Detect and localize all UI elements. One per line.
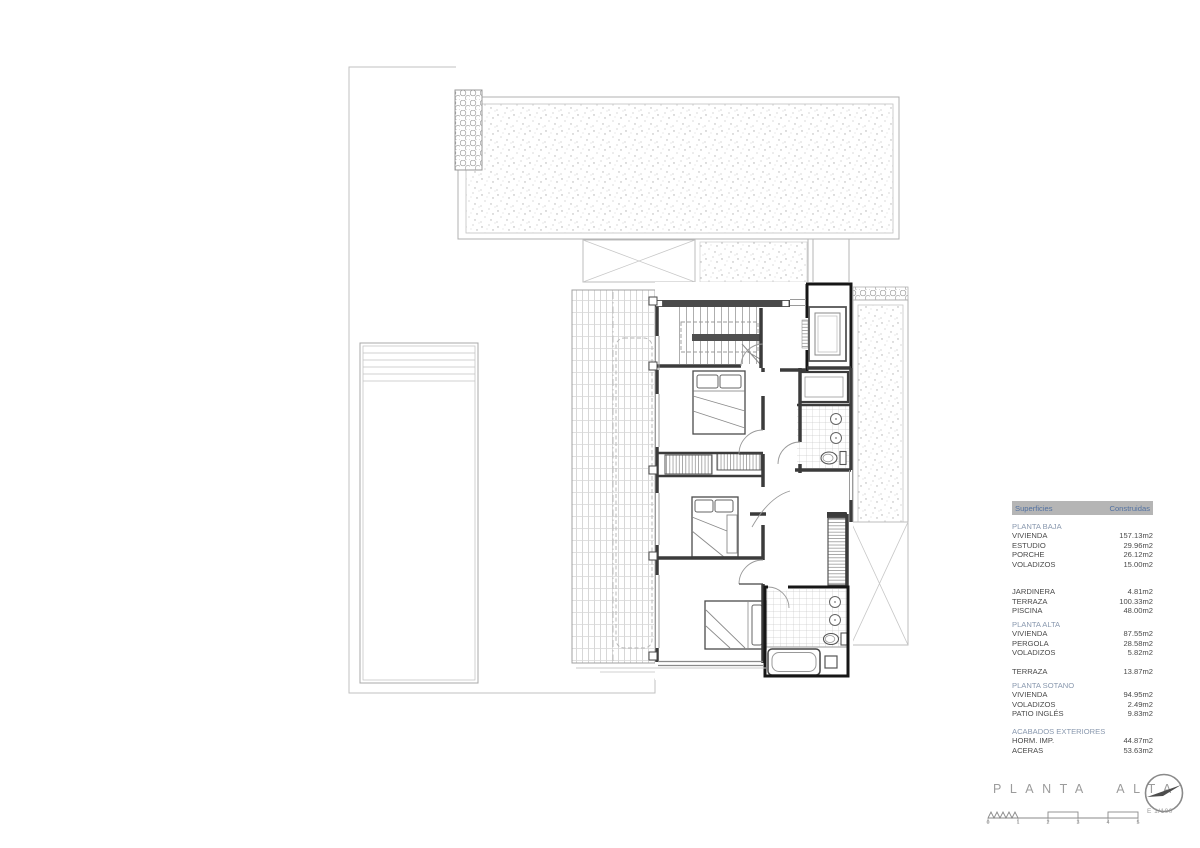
area-value: 4.81m2 (1128, 587, 1153, 596)
area-value: 2.49m2 (1128, 700, 1153, 709)
area-label: TERRAZA (1012, 597, 1047, 606)
area-label: VIVIENDA (1012, 690, 1047, 699)
bed-2 (692, 497, 738, 557)
top-facade (655, 300, 806, 308)
area-row: PERGOLA28.58m2 (1012, 639, 1153, 648)
areas-col-superficies: Superficies (1015, 504, 1053, 513)
area-label: VOLADIZOS (1012, 700, 1055, 709)
area-row: VIVIENDA94.95m2 (1012, 690, 1153, 699)
areas-table-body: PLANTA BAJAVIVIENDA157.13m2ESTUDIO29.96m… (1012, 522, 1153, 755)
closet-room (800, 372, 848, 402)
planter-pebbles (455, 90, 482, 170)
areas-group: ACABADOS EXTERIORESHORM. IMP.44.87m2ACER… (1012, 727, 1153, 755)
pool (360, 343, 478, 683)
area-row: ESTUDIO29.96m2 (1012, 541, 1153, 550)
area-row: JARDINERA4.81m2 (1012, 587, 1153, 596)
areas-group: TERRAZA13.87m2 (1012, 667, 1153, 676)
scale-tick: 2 (1046, 820, 1049, 826)
area-row: PISCINA48.00m2 (1012, 606, 1153, 615)
area-label: VOLADIZOS (1012, 648, 1055, 657)
areas-table: Superficies Construidas PLANTA BAJAVIVIE… (1012, 501, 1153, 755)
scale-tick: 1 (1016, 820, 1019, 826)
area-value: 28.58m2 (1123, 639, 1153, 648)
area-label: ACERAS (1012, 746, 1043, 755)
scale-tick: 5 (1136, 820, 1139, 826)
bed-1 (693, 371, 745, 434)
area-row: TERRAZA13.87m2 (1012, 667, 1153, 676)
bed-3 (705, 601, 766, 649)
main-terrace (458, 97, 899, 239)
areas-col-construidas: Construidas (1109, 504, 1150, 513)
area-label: PERGOLA (1012, 639, 1049, 648)
area-row: VIVIENDA87.55m2 (1012, 629, 1153, 638)
area-row: PATIO INGLÉS9.83m2 (1012, 709, 1153, 718)
area-value: 5.82m2 (1128, 648, 1153, 657)
area-value: 87.55m2 (1123, 629, 1153, 638)
area-row: VOLADIZOS15.00m2 (1012, 560, 1153, 569)
skylight-box (583, 240, 695, 282)
area-label: TERRAZA (1012, 667, 1047, 676)
areas-group-title: PLANTA BAJA (1012, 522, 1153, 531)
area-value: 94.95m2 (1123, 690, 1153, 699)
areas-table-header: Superficies Construidas (1012, 501, 1153, 515)
area-row: HORM. IMP.44.87m2 (1012, 736, 1153, 745)
area-row: TERRAZA100.33m2 (1012, 597, 1153, 606)
area-label: HORM. IMP. (1012, 736, 1054, 745)
pergola-deck (572, 290, 660, 663)
areas-group: PLANTA BAJAVIVIENDA157.13m2ESTUDIO29.96m… (1012, 522, 1153, 569)
area-value: 100.33m2 (1119, 597, 1153, 606)
area-label: PATIO INGLÉS (1012, 709, 1064, 718)
scale-tick: 3 (1076, 820, 1079, 826)
scale-label: E 1/100 (1147, 808, 1173, 815)
area-row: ACERAS53.63m2 (1012, 746, 1153, 755)
drawing-sheet: Superficies Construidas PLANTA BAJAVIVIE… (0, 0, 1200, 848)
side-garden (853, 287, 908, 530)
area-value: 48.00m2 (1123, 606, 1153, 615)
area-label: PORCHE (1012, 550, 1045, 559)
area-value: 15.00m2 (1123, 560, 1153, 569)
stairwell-void (827, 512, 846, 585)
area-label: VOLADIZOS (1012, 560, 1055, 569)
area-value: 26.12m2 (1123, 550, 1153, 559)
areas-group: JARDINERA4.81m2TERRAZA100.33m2PISCINA48.… (1012, 587, 1153, 615)
area-label: JARDINERA (1012, 587, 1055, 596)
area-row: PORCHE26.12m2 (1012, 550, 1153, 559)
area-label: VIVIENDA (1012, 629, 1047, 638)
scale-tick-labels: 012345 (982, 820, 1152, 830)
scale-tick: 0 (986, 820, 989, 826)
area-label: VIVIENDA (1012, 531, 1047, 540)
area-row: VIVIENDA157.13m2 (1012, 531, 1153, 540)
area-row: VOLADIZOS5.82m2 (1012, 648, 1153, 657)
areas-group-title: ACABADOS EXTERIORES (1012, 727, 1153, 736)
area-row: VOLADIZOS2.49m2 (1012, 700, 1153, 709)
areas-group: PLANTA SOTANOVIVIENDA94.95m2VOLADIZOS2.4… (1012, 681, 1153, 719)
area-value: 53.63m2 (1123, 746, 1153, 755)
area-value: 9.83m2 (1128, 709, 1153, 718)
scale-tick: 4 (1106, 820, 1109, 826)
areas-group-title: PLANTA SOTANO (1012, 681, 1153, 690)
terrace-strip (700, 239, 849, 284)
area-value: 44.87m2 (1123, 736, 1153, 745)
areas-group: PLANTA ALTAVIVIENDA87.55m2PERGOLA28.58m2… (1012, 620, 1153, 658)
area-label: PISCINA (1012, 606, 1042, 615)
area-value: 13.87m2 (1123, 667, 1153, 676)
area-label: ESTUDIO (1012, 541, 1046, 550)
roof-terrace-x (851, 522, 908, 645)
area-value: 157.13m2 (1119, 531, 1153, 540)
areas-group-title: PLANTA ALTA (1012, 620, 1153, 629)
area-value: 29.96m2 (1123, 541, 1153, 550)
staircase (676, 306, 760, 364)
